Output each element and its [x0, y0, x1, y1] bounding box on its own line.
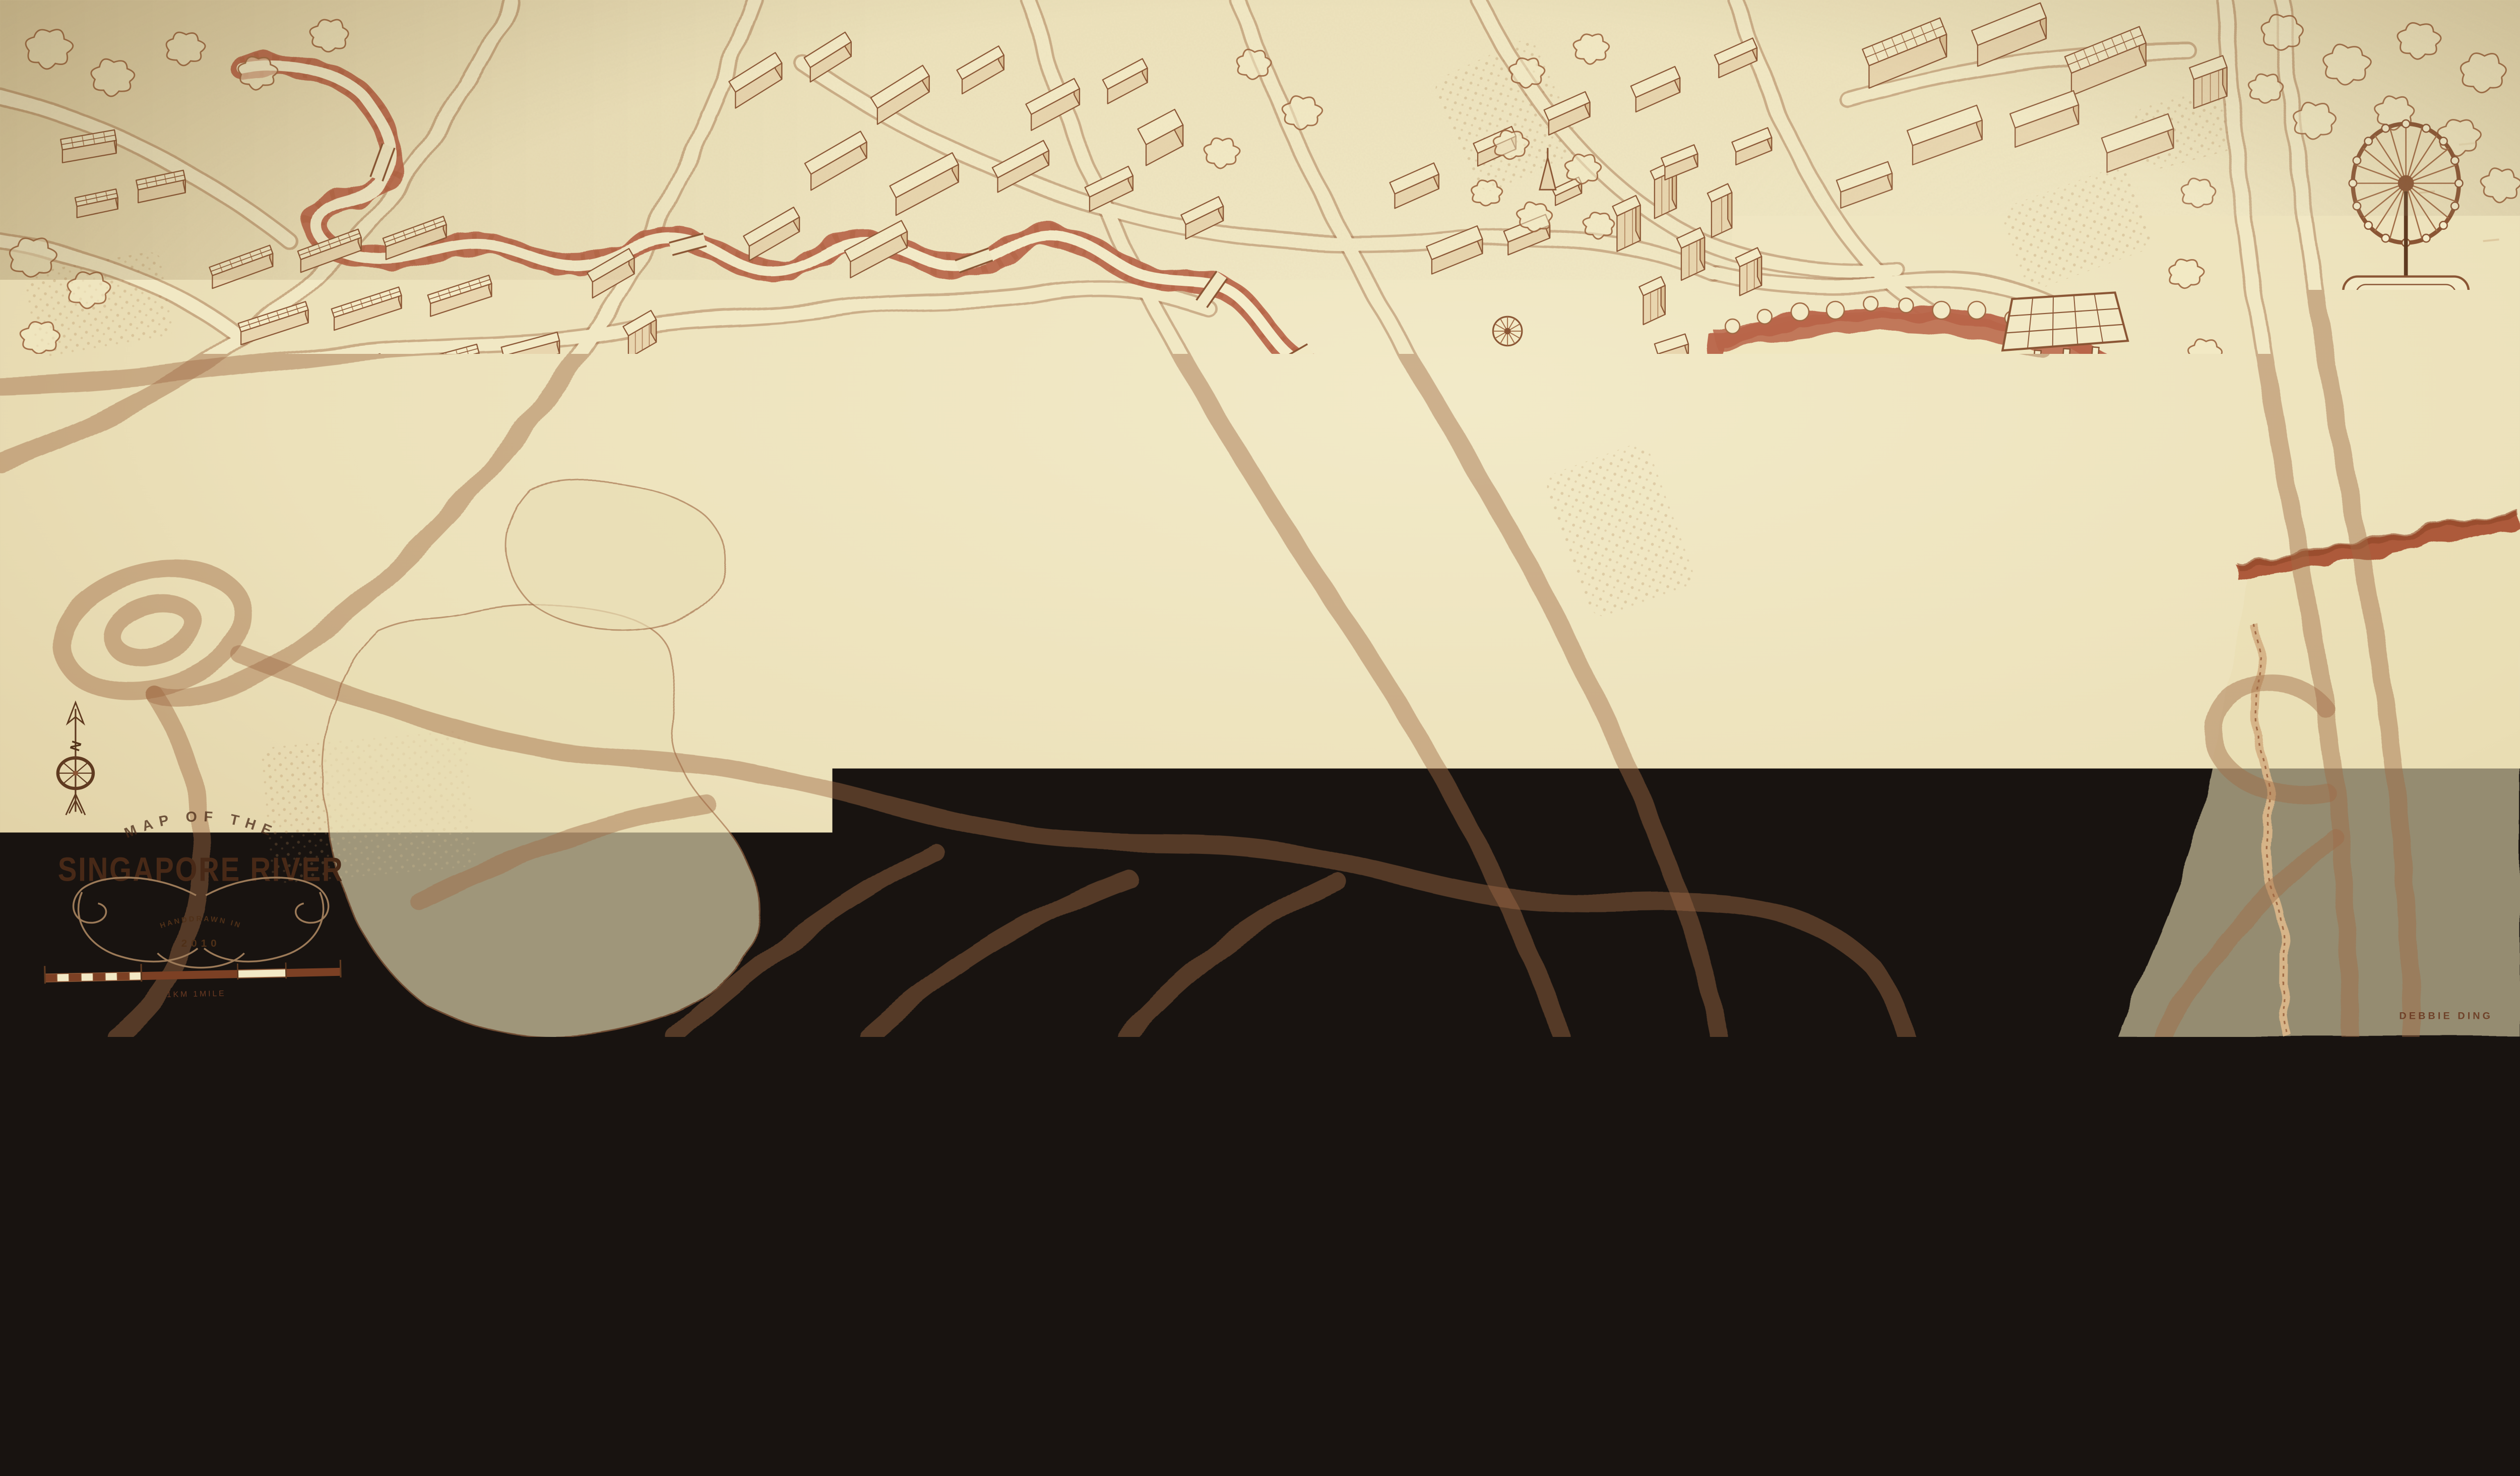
paper-grain — [0, 0, 2520, 1037]
hand-drawn-map: MAP OF THE SINGAPORE RIVER HANDDRAWN IN … — [0, 0, 2520, 1037]
map-artwork: MAP OF THE SINGAPORE RIVER HANDDRAWN IN … — [0, 0, 2520, 1037]
